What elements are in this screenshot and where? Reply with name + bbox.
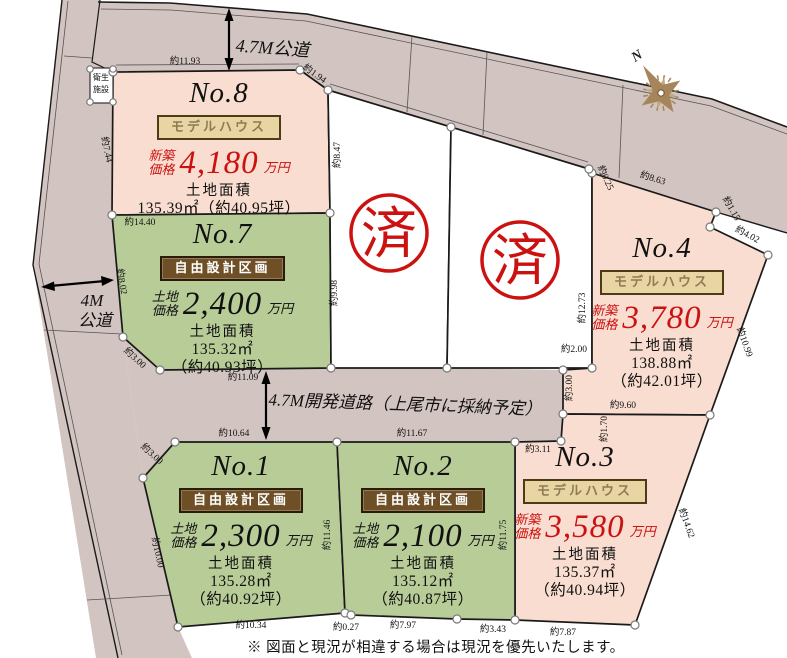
dim-jog-1-2: 約0.27 (333, 621, 359, 633)
plot-no7-badge: 自由設計区画 (160, 256, 284, 280)
dim-no3-top-left: 約1.70 (598, 416, 610, 442)
plot-no2-title: No.2 (330, 449, 516, 483)
plot-no1-badge: 自由設計区画 (179, 488, 303, 512)
plot-no2-area-label: 土地面積 (330, 556, 516, 573)
plot-info-no1: No.1 自由設計区画 土地 価格 2,300 万円 土地面積 135.28㎡ … (148, 449, 334, 609)
plot-no4-price-label-2: 価格 (591, 318, 617, 333)
plot-info-no7: No.7 自由設計区画 土地 価格 2,400 万円 土地面積 135.32㎡ … (120, 217, 325, 377)
dim-no2-bottom-2: 約3.43 (480, 623, 506, 635)
plot-no4-area-label: 土地面積 (578, 338, 746, 355)
plot-no3-area-tsubo: （約40.94坪） (502, 582, 668, 600)
plot-no1-area: 135.28㎡ (148, 573, 334, 591)
plot-no3-area: 135.37㎡ (502, 564, 668, 582)
plot-no4-area-tsubo: （約42.01坪） (578, 373, 746, 391)
plot-no4-price-unit: 万円 (707, 315, 733, 334)
plot-no7-area: 135.32㎡ (120, 341, 325, 359)
plot-no7-title: No.7 (120, 217, 325, 251)
plot-no2-area-tsubo: （約40.87坪） (330, 591, 516, 609)
dim-no8-right: 約8.47 (331, 142, 343, 168)
plot-no3-area-label: 土地面積 (502, 547, 668, 564)
plot-no3-price-unit: 万円 (630, 524, 656, 543)
plot-no7-area-tsubo: （約40.93坪） (120, 359, 325, 377)
dim-no2-bottom-1: 約7.97 (390, 619, 416, 631)
plot-no8-area: 135.39㎡（約40.95坪） (118, 200, 320, 218)
sold-stamp-1: 済 (351, 195, 427, 271)
dim-no4-bottom: 約9.60 (610, 399, 636, 411)
plot-no1-area-label: 土地面積 (148, 556, 334, 573)
dim-no8-top: 約11.93 (170, 55, 201, 67)
left-road-label-2: 公道 (78, 311, 115, 330)
plot-info-no8: No.8 モデルハウス 新築 価格 4,180 万円 土地面積 135.39㎡（… (118, 76, 320, 218)
plot-no8-area-label: 土地面積 (118, 183, 320, 200)
plot-no3-title: No.3 (502, 440, 668, 474)
plot-no4-title: No.4 (578, 231, 746, 265)
dim-no3-right: 約14.62 (676, 506, 698, 539)
plot-info-no4: No.4 モデルハウス 新築 価格 3,780 万円 土地面積 138.88㎡ … (578, 231, 746, 391)
sold-stamp-1-text: 済 (361, 204, 417, 266)
plot-no3-badge: モデルハウス (523, 479, 647, 503)
plot-no1-price-label-2: 価格 (170, 536, 196, 551)
plot-no4-price: 3,780 (622, 302, 701, 335)
plot-no3-price: 3,580 (545, 511, 624, 544)
plot-info-no3: No.3 モデルハウス 新築 価格 3,580 万円 土地面積 135.37㎡ … (502, 440, 668, 600)
plot-no8-price-label-2: 価格 (148, 163, 174, 178)
plot-no2-price-unit: 万円 (468, 533, 494, 552)
plot-no7-price-unit: 万円 (267, 301, 293, 320)
plot-no1-price-unit: 万円 (286, 533, 312, 552)
plot-no1-price-label-1: 土地 (170, 522, 196, 537)
plot-no7-area-label: 土地面積 (120, 324, 325, 341)
compass-north-label: N (628, 47, 646, 66)
plot-no2-price-label-1: 土地 (352, 522, 378, 537)
plot-no8-badge: モデルハウス (157, 115, 281, 139)
plot-no1-price: 2,300 (201, 520, 280, 553)
plot-no7-price: 2,400 (183, 288, 262, 321)
plot-no8-price: 4,180 (179, 147, 258, 180)
plot-no3-price-label-1: 新築 (514, 513, 540, 528)
plot-no1-area-tsubo: （約40.92坪） (148, 591, 334, 609)
lot-map: 衛生 施設 約11.93 約1.94 約8.47 約7.44 約14.40 約8… (0, 0, 787, 658)
dim-no2-top: 約11.67 (397, 427, 428, 439)
facility-label-2: 施設 (93, 84, 109, 94)
plot-no4-price-label-1: 新築 (591, 304, 617, 319)
plot-no8-price-label-1: 新築 (148, 149, 174, 164)
plot-info-no2: No.2 自由設計区画 土地 価格 2,100 万円 土地面積 135.12㎡ … (330, 449, 516, 609)
facility-label-1: 衛生 (93, 72, 109, 82)
plot-no7-price-label-2: 価格 (152, 304, 178, 319)
plot-no4-badge: モデルハウス (600, 270, 724, 294)
sold-stamp-2: 済 (482, 222, 558, 298)
plot-no8-title: No.8 (118, 76, 320, 110)
dim-no7-right: 約9.98 (328, 280, 340, 306)
plot-no2-badge: 自由設計区画 (361, 488, 485, 512)
sold-stamp-2-text: 済 (492, 231, 548, 293)
plot-no7-price-label-1: 土地 (152, 290, 178, 305)
plot-no2-price: 2,100 (383, 520, 462, 553)
left-road-label-1: 4M (81, 291, 105, 310)
dim-no1-top: 約10.64 (219, 427, 250, 439)
plot-no2-area: 135.12㎡ (330, 573, 516, 591)
plot-no1-title: No.1 (148, 449, 334, 483)
plot-no8-price-unit: 万円 (264, 160, 290, 179)
dim-no1-bottom: 約10.34 (236, 619, 267, 631)
dim-no4-notch: 約3.00 (563, 375, 575, 401)
plot-no4-area: 138.88㎡ (578, 355, 746, 373)
plot-no2-price-label-2: 価格 (352, 536, 378, 551)
plot-no3-price-label-2: 価格 (514, 527, 540, 542)
disclaimer-note: ※ 図面と現況が相違する場合は現況を優先いたします。 (247, 636, 625, 657)
